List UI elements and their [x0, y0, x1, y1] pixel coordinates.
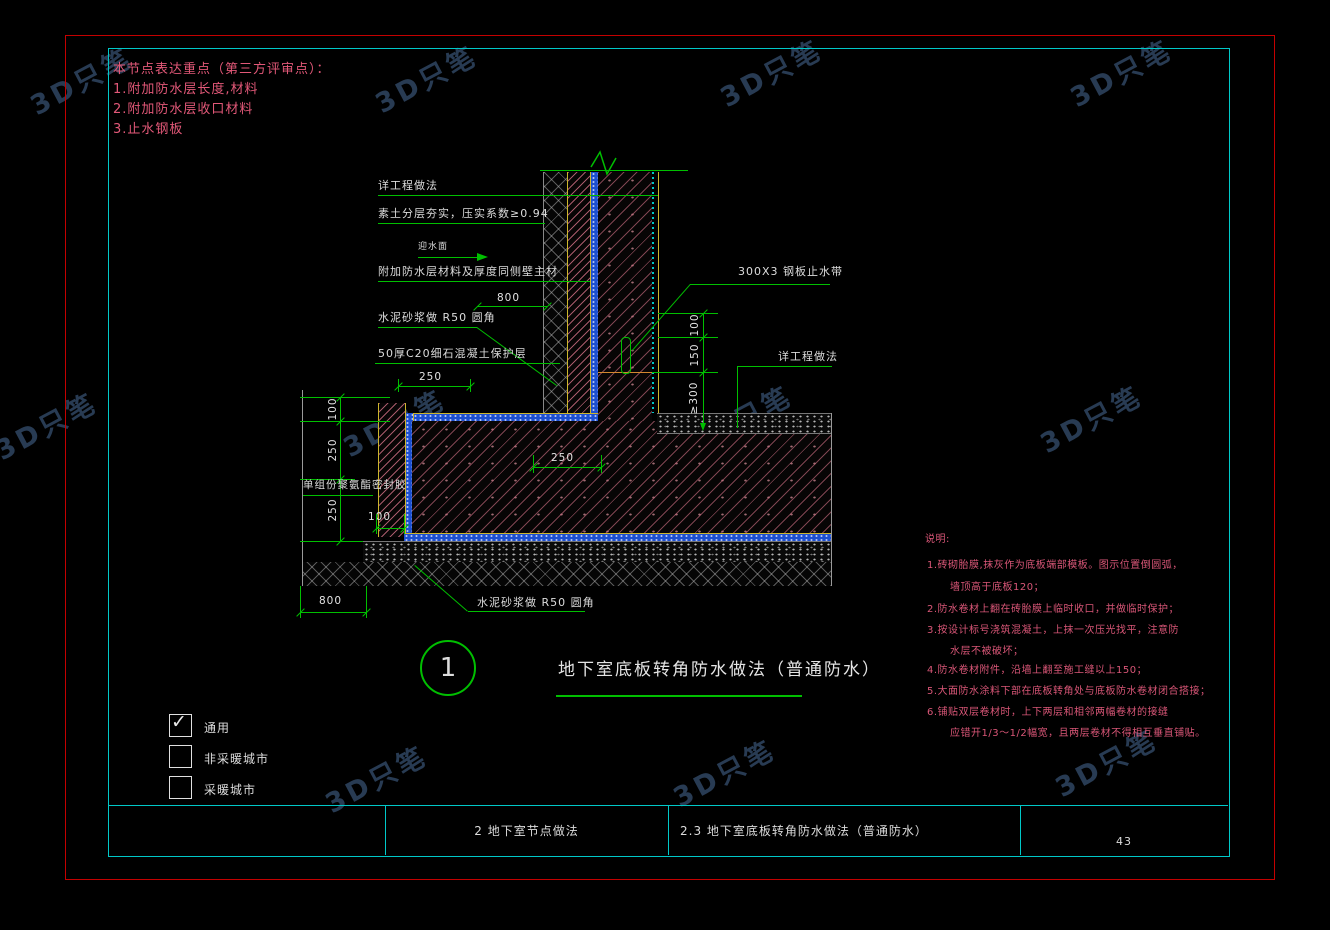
dim-line	[477, 306, 547, 307]
dim-line-vertical	[703, 313, 704, 425]
dim-line	[300, 612, 366, 613]
dim-100-form: 100	[368, 511, 391, 523]
leader-line	[690, 284, 830, 285]
leader-line	[303, 495, 373, 496]
review-notes-title: 本节点表达重点（第三方评审点）：	[113, 60, 331, 80]
dim-ext-line	[658, 313, 718, 314]
site-note-line: 3.按设计标号浇筑混凝土，上抹一次压光找平，注意防	[927, 621, 1179, 636]
leader-drop-line	[737, 366, 738, 428]
titlebar-page-cell: 43	[1020, 805, 1228, 855]
cushion-layer	[363, 541, 832, 564]
review-note-item: 3.止水钢板	[113, 120, 331, 140]
label-mortar-fillet-upper: 水泥砂浆做 R50 圆角	[378, 309, 496, 325]
dim-ext-line	[300, 421, 390, 422]
check-icon: ✓	[171, 711, 187, 733]
dim-800-top: 800	[497, 292, 520, 304]
dim-250-left-a: 250	[327, 428, 339, 472]
floor-slab-hatch	[412, 421, 832, 533]
break-symbol	[590, 150, 620, 176]
label-water-facing-side: 迎水面	[418, 239, 448, 252]
site-note-line: 2.防水卷材上翻在砖胎膜上临时收口，并做临时保护；	[927, 600, 1179, 615]
arrow-down-icon	[700, 423, 706, 431]
leader-line	[737, 366, 832, 367]
concrete-wall-hatch	[598, 172, 652, 421]
site-note-line: 墙顶高于底板120；	[950, 578, 1044, 593]
water-face-arrow-line	[418, 257, 478, 258]
dim-100-left: 100	[327, 387, 339, 431]
legend-label-nonheating: 非采暖城市	[204, 750, 269, 767]
dim-ext-line	[601, 455, 602, 473]
site-note-line: 4.防水卷材附件，沿墙上翻至施工缝以上150；	[927, 661, 1147, 676]
leader-line	[468, 611, 585, 612]
dim-ext-line	[376, 514, 377, 534]
site-note-line: 应错开1/3～1/2幅宽，且两层卷材不得相互垂直铺贴。	[950, 724, 1206, 739]
site-note-line: 5.大面防水涂料下部在底板转角处与底板防水卷材闭合搭接；	[927, 682, 1211, 697]
dim-250-slab: 250	[551, 452, 574, 464]
detail-title-underline	[556, 695, 802, 697]
wall-inner-face-line	[658, 172, 659, 413]
review-notes: 本节点表达重点（第三方评审点）： 1.附加防水层长度,材料 2.附加防水层收口材…	[113, 60, 331, 140]
legend-label-general: 通用	[204, 719, 230, 736]
dim-ext-line	[300, 397, 390, 398]
leader-line	[378, 327, 477, 328]
steel-waterstop-shape	[621, 337, 631, 374]
dim-line	[533, 467, 601, 468]
dim-ext-line	[404, 514, 405, 534]
dim-ext-line	[533, 455, 534, 473]
leader-line	[375, 363, 560, 364]
legend-label-heating: 采暖城市	[204, 781, 256, 798]
legend-checkbox-heating	[169, 776, 192, 799]
label-work-method-right: 详工程做法	[778, 348, 838, 364]
titlebar-detail-text: 2.3 地下室底板转角防水做法（普通防水）	[680, 822, 928, 839]
review-note-item: 1.附加防水层长度,材料	[113, 80, 331, 100]
label-additional-membrane: 附加防水层材料及厚度同侧壁主材	[378, 263, 558, 279]
dim-line	[398, 386, 470, 387]
label-protection-layer: 50厚C20细石混凝土保护层	[378, 345, 527, 361]
dim-800-bottom: 800	[319, 595, 342, 607]
detail-number-bubble: 1	[420, 640, 476, 696]
protection-wall-hatch	[567, 172, 592, 421]
detail-title: 地下室底板转角防水做法（普通防水）	[558, 655, 881, 680]
label-soil-compaction: 素土分层夯实，压实系数≥0.94	[378, 205, 549, 221]
arrow-right-icon	[477, 253, 488, 261]
site-note-line: 6.铺贴双层卷材时，上下两层和相邻两幅卷材的接缝	[927, 703, 1169, 718]
titlebar-section: 2 地下室节点做法	[385, 805, 668, 855]
cad-sheet: 3D只笔 3D只笔 3D只笔 3D只笔 3D只笔 3D只笔 3D只笔 3D只笔 …	[0, 0, 1330, 930]
dim-150-right: 150	[689, 333, 701, 377]
titlebar-section-text: 2 地下室节点做法	[474, 822, 578, 839]
dim-ext-line	[658, 337, 718, 338]
dim-ge300-right: ≥300	[688, 376, 700, 420]
label-steel-waterstop: 300X3 钢板止水带	[738, 263, 843, 279]
site-note-line: 水层不被破坏；	[950, 642, 1024, 657]
dim-ext-line	[652, 372, 718, 373]
review-note-item: 2.附加防水层收口材料	[113, 100, 331, 120]
dim-line	[376, 528, 404, 529]
dim-ext-line	[300, 541, 363, 542]
leader-line	[378, 223, 545, 224]
detail-number: 1	[440, 653, 457, 683]
site-note-line: 1.砖砌胎膜,抹灰作为底板端部模板。图示位置倒圆弧，	[927, 556, 1183, 571]
wall-inner-face-line	[652, 172, 654, 413]
legend-checkbox-nonheating	[169, 745, 192, 768]
leader-line	[378, 195, 658, 196]
interior-floor-band	[657, 413, 832, 434]
page-number: 43	[1116, 835, 1132, 848]
dim-250-top: 250	[419, 371, 442, 383]
label-work-method-left: 详工程做法	[378, 177, 438, 193]
leader-line	[378, 281, 590, 282]
site-notes-title: 说明:	[925, 530, 950, 545]
label-sealant: 单组份聚氨酯密封胶	[303, 477, 407, 492]
section-cut-line	[831, 413, 832, 586]
titlebar-detail: 2.3 地下室底板转角防水做法（普通防水）	[668, 805, 1032, 855]
label-mortar-fillet-lower: 水泥砂浆做 R50 圆角	[477, 594, 595, 610]
legend-checkbox-general: ✓	[169, 714, 192, 737]
subsoil-hatch	[302, 562, 832, 586]
